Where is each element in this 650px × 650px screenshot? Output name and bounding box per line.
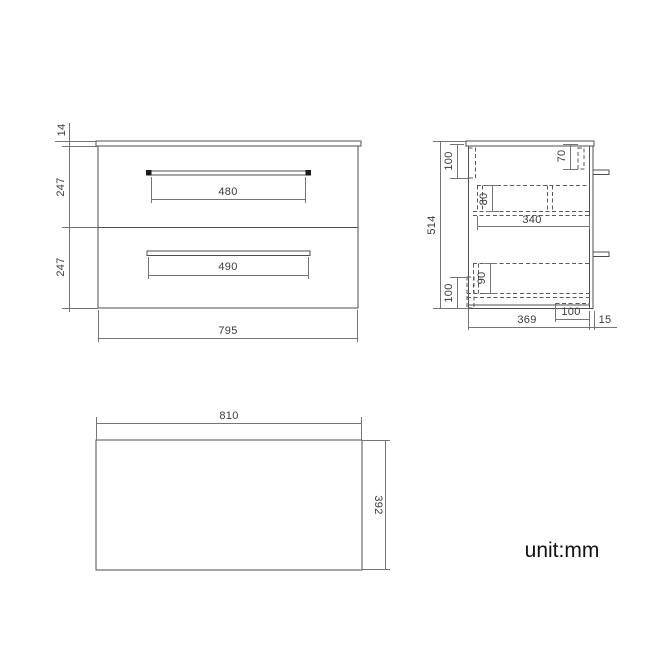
dim-top-handle-width: 480 [218, 186, 237, 198]
side-top-handle [593, 170, 609, 175]
front-bottom-handle [147, 251, 310, 256]
front-view [96, 141, 361, 308]
dim-top-drawer-height: 247 [55, 177, 67, 196]
dim-worktop-overhang: 15 [599, 314, 612, 326]
dim-bottom-drawer-height: 247 [55, 257, 67, 276]
dim-bottom-drawer-inner: 90 [476, 272, 488, 285]
top-view-worktop [96, 440, 362, 570]
dim-plan-width: 810 [219, 410, 238, 422]
dim-cabinet-depth: 369 [517, 314, 536, 326]
dim-overall-height: 514 [426, 215, 438, 234]
front-top-handle [146, 170, 311, 176]
front-view-dimensions [55, 123, 358, 342]
dim-drawer-depth: 340 [522, 214, 541, 226]
side-view-hidden-lines [467, 148, 590, 309]
dim-bottom-handle-width: 490 [218, 261, 237, 273]
dim-worktop-thickness: 14 [56, 124, 68, 137]
front-worktop [96, 141, 361, 146]
side-bottom-handle [593, 252, 609, 257]
technical-drawing-canvas: 14 247 247 480 490 795 514 100 100 70 80… [0, 0, 650, 650]
dim-top-rail-height: 100 [443, 151, 455, 170]
dim-overall-width: 795 [218, 325, 237, 337]
side-top-rail-hidden [469, 148, 476, 178]
dim-top-drawer-inner: 80 [478, 193, 490, 206]
side-worktop [466, 141, 594, 146]
dim-base-recess: 100 [561, 306, 580, 318]
dim-bottom-rail-height: 100 [443, 283, 455, 302]
dim-handle-drop: 70 [556, 150, 568, 163]
unit-label: unit:mm [525, 539, 600, 563]
top-view [96, 440, 362, 570]
side-front-rail-hidden [578, 148, 584, 169]
dim-plan-depth: 392 [372, 495, 384, 514]
